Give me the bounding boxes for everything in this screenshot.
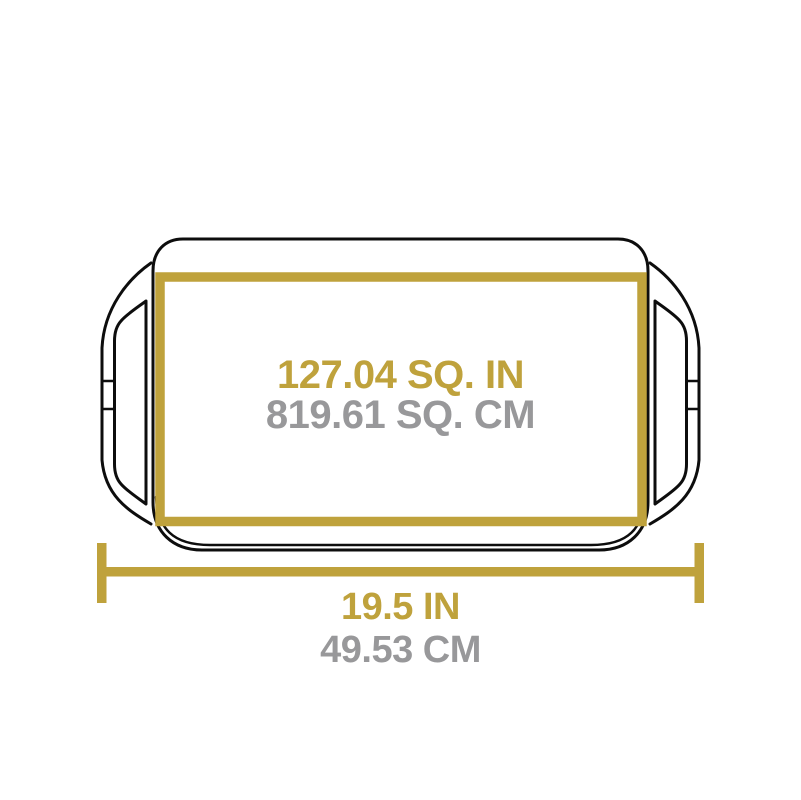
dimension-line-bar — [97, 567, 704, 577]
handle-cutout — [115, 301, 147, 504]
pan-handle-right — [650, 263, 700, 524]
pan-handle-left — [101, 263, 151, 524]
griddle-dimension-drawing — [0, 0, 801, 800]
dimension-line-left-cap — [97, 543, 107, 603]
pan-outline — [153, 239, 648, 550]
diagram-canvas: 127.04 SQ. IN 819.61 SQ. CM 19.5 IN 49.5… — [0, 0, 801, 800]
dimension-line-right-cap — [695, 543, 705, 603]
width-dimension-line — [97, 543, 704, 603]
cooking-surface-highlight — [160, 277, 642, 522]
